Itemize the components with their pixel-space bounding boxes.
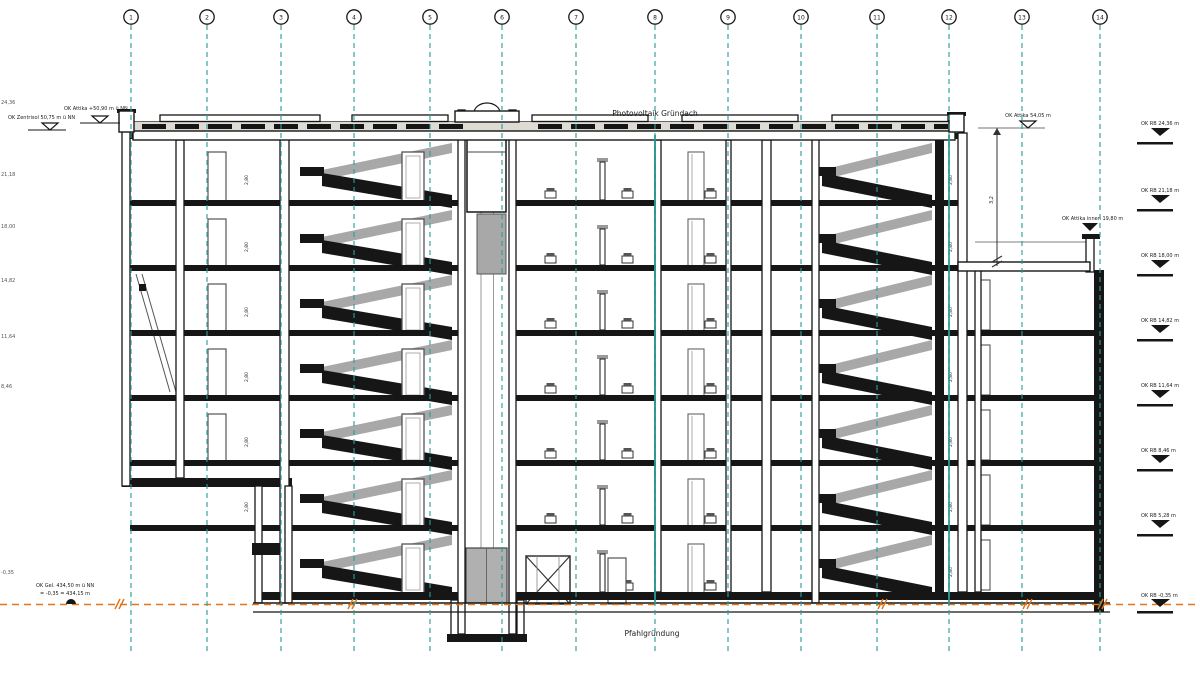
- story-height-dim: 2,80: [244, 372, 250, 382]
- pv-panel: [637, 124, 661, 129]
- wall: [176, 140, 184, 478]
- pv-panel: [307, 124, 331, 129]
- floor-slab: [516, 395, 1095, 401]
- pv-panel: [802, 124, 826, 129]
- room-door: [208, 414, 226, 464]
- stair-flight-beyond: [322, 275, 452, 312]
- toilet-cistern: [547, 318, 555, 321]
- wall-cut: [252, 543, 280, 555]
- room-door: [208, 152, 226, 202]
- level-marker-filled: [1151, 195, 1170, 203]
- roof-upstand: [352, 115, 448, 122]
- wall-cut: [935, 133, 944, 592]
- level-label: OK RB 11,64 m: [1141, 383, 1179, 389]
- level-marker-filled: [1151, 390, 1170, 398]
- grid-axis-label: 2: [205, 15, 209, 22]
- floor-slab: [516, 330, 1095, 336]
- toilet-cistern: [707, 580, 715, 583]
- partition-cap: [597, 485, 608, 489]
- partition-wall: [600, 554, 605, 592]
- level-label: OK Attika +50,90 m ü NN: [64, 106, 128, 112]
- wall-cut: [1094, 270, 1104, 612]
- roof-upstand: [160, 115, 320, 122]
- elevator-shaft: [466, 118, 507, 603]
- dimension-label: 3,2: [989, 196, 995, 204]
- room-door: [688, 349, 704, 399]
- level-marker-filled: [1151, 599, 1170, 607]
- toilet-cistern: [707, 188, 715, 191]
- building-section-drawing: 2,802,802,802,802,802,802,802,802,802,80…: [0, 0, 1200, 675]
- level-marker-filled: [1151, 455, 1170, 463]
- toilet-fixture: [705, 516, 716, 523]
- pv-panel: [538, 124, 562, 129]
- toilet-fixture: [622, 451, 633, 458]
- toilet-cistern: [547, 253, 555, 256]
- toilet-cistern: [547, 513, 555, 516]
- stair-flight-beyond: [322, 143, 452, 180]
- floor-slab: [516, 460, 1095, 466]
- stair-door: [402, 544, 424, 594]
- partition-wall: [600, 489, 605, 525]
- level-marker-filled: [1151, 260, 1170, 268]
- stair-door: [402, 349, 424, 399]
- partition-wall: [600, 424, 605, 460]
- stair-landing: [300, 559, 324, 568]
- partition-cap: [597, 290, 608, 294]
- stair-flights: [300, 143, 932, 600]
- toilet-fixture: [705, 583, 716, 590]
- toilet-fixture: [705, 451, 716, 458]
- pv-panel: [703, 124, 727, 129]
- wall: [122, 130, 130, 486]
- toilet-cistern: [624, 188, 632, 191]
- toilet-fixture: [545, 386, 556, 393]
- pv-panel: [736, 124, 760, 129]
- toilet-cistern: [547, 448, 555, 451]
- wall-cut: [1082, 234, 1100, 239]
- ground-marker: [66, 599, 76, 604]
- level-label: OK Attika 54,05 m: [1005, 113, 1051, 119]
- wall: [517, 600, 524, 636]
- wall: [509, 110, 516, 634]
- roof-slab: [119, 111, 134, 132]
- partition-cap: [597, 225, 608, 229]
- pv-panel: [835, 124, 859, 129]
- stair-flight-beyond: [322, 535, 452, 572]
- roof-slab: [949, 114, 964, 132]
- toilet-cistern: [707, 448, 715, 451]
- room-door: [688, 414, 704, 464]
- wall: [975, 270, 981, 592]
- story-height-dim: 2,80: [244, 437, 250, 447]
- pv-panel: [241, 124, 265, 129]
- wall: [812, 133, 819, 603]
- level-marker-filled: [1151, 128, 1170, 136]
- toilet-fixture: [545, 451, 556, 458]
- stair-landing: [300, 234, 324, 243]
- partition-wall: [600, 229, 605, 265]
- pv-panel: [868, 124, 892, 129]
- level-marker-bar: [1137, 274, 1173, 277]
- room-door: [688, 284, 704, 334]
- level-marker-open: [42, 123, 58, 130]
- partition-cap: [597, 158, 608, 162]
- left-edge-label: 21,18: [1, 172, 15, 178]
- ground-slab: [516, 592, 1104, 600]
- pv-panel: [439, 124, 463, 129]
- floor-slab: [130, 525, 458, 531]
- partition-cap: [597, 550, 608, 554]
- story-height-dim: 2,80: [244, 502, 250, 512]
- toilet-cistern: [624, 253, 632, 256]
- toilet-cistern: [707, 318, 715, 321]
- level-label: OK RB -0,35 m: [1141, 593, 1178, 599]
- grid-axis-label: 12: [945, 15, 953, 22]
- pv-panel: [571, 124, 595, 129]
- pv-panel: [340, 124, 364, 129]
- partition-cap: [597, 355, 608, 359]
- toilet-fixture: [545, 191, 556, 198]
- wall: [451, 600, 458, 636]
- toilet-fixture: [622, 516, 633, 523]
- room-door: [688, 219, 704, 269]
- toilet-cistern: [624, 448, 632, 451]
- ramp-block: [139, 284, 146, 291]
- grid-axis-label: 11: [873, 15, 881, 22]
- grid-axis-label: 3: [279, 15, 283, 22]
- stair-flight-beyond: [322, 405, 452, 442]
- level-label: OK Gel. 434,50 m ü NN: [36, 583, 94, 589]
- grid-axis-label: 4: [352, 15, 356, 22]
- pv-panel: [604, 124, 628, 129]
- roof-slab: [958, 262, 1090, 271]
- left-edge-label: 14,82: [1, 278, 15, 284]
- level-label: OK RB 18,00 m: [1141, 253, 1179, 259]
- wall: [958, 133, 967, 592]
- partition-wall: [600, 294, 605, 330]
- room-door: [688, 152, 704, 202]
- pv-panel: [208, 124, 232, 129]
- level-marker-bar: [1137, 339, 1173, 342]
- story-height-dim: 2,80: [244, 307, 250, 317]
- partition-cap: [597, 420, 608, 424]
- stair-flight-beyond: [322, 470, 452, 507]
- floor-slabs: [122, 133, 1104, 600]
- level-marker-filled: [1151, 325, 1170, 333]
- level-marker-filled: [1082, 223, 1098, 231]
- room-door: [208, 219, 226, 269]
- stair-flight-beyond: [322, 210, 452, 247]
- toilet-fixture: [622, 386, 633, 393]
- dimension-arrow: [993, 128, 1001, 135]
- grid-axis-label: 8: [653, 15, 657, 22]
- left-edge-label: 24,36: [1, 100, 15, 106]
- toilet-fixture: [545, 516, 556, 523]
- toilet-fixture: [705, 191, 716, 198]
- level-label: = -0,35 = 434,15 m: [40, 591, 90, 597]
- grid-axis-label: 14: [1096, 15, 1104, 22]
- foundation-title: Pfahlgründung: [625, 629, 680, 638]
- left-edge-label: -0,35: [1, 570, 14, 576]
- toilet-cistern: [707, 253, 715, 256]
- story-height-dim: 2,80: [244, 242, 250, 252]
- pv-panel: [142, 124, 166, 129]
- level-label: OK RB 24,36 m: [1141, 121, 1179, 127]
- toilet-cistern: [707, 383, 715, 386]
- room-door: [688, 544, 704, 594]
- level-label: OK RB 5,28 m: [1141, 513, 1176, 519]
- grid-axis-label: 1: [129, 15, 133, 22]
- left-edge-label: 8,46: [1, 384, 12, 390]
- roof-slab: [133, 131, 955, 140]
- stair-flight-beyond: [322, 340, 452, 377]
- stair-landing: [300, 364, 324, 373]
- toilet-cistern: [624, 383, 632, 386]
- level-marker-filled: [1151, 520, 1170, 528]
- toilet-cistern: [547, 383, 555, 386]
- grid-axis-label: 7: [574, 15, 578, 22]
- pv-panel: [406, 124, 430, 129]
- story-height-dim: 2,80: [244, 175, 250, 185]
- toilet-fixture: [622, 191, 633, 198]
- drawing-canvas: 2,802,802,802,802,802,802,802,802,802,80…: [0, 0, 1200, 675]
- toilet-fixture: [545, 321, 556, 328]
- stair-landing: [300, 429, 324, 438]
- pv-panel: [373, 124, 397, 129]
- roof-upstand: [682, 115, 798, 122]
- roof-upstand: [832, 115, 948, 122]
- stair-door: [402, 219, 424, 269]
- floor-slab: [516, 525, 1095, 531]
- roof-slab: [455, 111, 519, 122]
- grid-axis-label: 5: [428, 15, 432, 22]
- pv-panel: [901, 124, 925, 129]
- level-marker-bar: [1137, 534, 1173, 537]
- toilet-cistern: [547, 188, 555, 191]
- room-door: [208, 349, 226, 399]
- rooms-and-fittings: 2,802,802,802,802,802,802,802,802,802,80…: [125, 148, 1102, 604]
- left-edge-label: 11,64: [1, 334, 15, 340]
- foundation-ground-line: [0, 599, 1200, 612]
- floor-slab: [516, 265, 958, 271]
- toilet-fixture: [622, 256, 633, 263]
- stair-landing: [300, 167, 324, 176]
- floor-slab: [516, 200, 958, 206]
- toilet-cistern: [624, 318, 632, 321]
- stair-door: [402, 284, 424, 334]
- toilet-cistern: [624, 513, 632, 516]
- stair-landing: [300, 299, 324, 308]
- toilet-fixture: [705, 321, 716, 328]
- level-label: OK RB 21,18 m: [1141, 188, 1179, 194]
- pv-panel: [274, 124, 298, 129]
- wall: [285, 486, 292, 603]
- level-marker-open: [92, 116, 108, 123]
- left-edge-label: 18,00: [1, 224, 15, 230]
- level-label: OK RB 14,82 m: [1141, 318, 1179, 324]
- toilet-cistern: [707, 513, 715, 516]
- wall: [762, 140, 771, 592]
- grid-axis-label: 10: [797, 15, 805, 22]
- level-label: OK RB 8,46 m: [1141, 448, 1176, 454]
- level-marker-bar: [1137, 469, 1173, 472]
- grid-axis-label: 13: [1018, 15, 1026, 22]
- toilet-fixture: [622, 321, 633, 328]
- level-label: OK Zentrisol 50,75 m ü NN: [8, 115, 75, 121]
- toilet-fixture: [705, 386, 716, 393]
- pv-panel: [670, 124, 694, 129]
- level-marker-bar: [1137, 142, 1173, 145]
- level-marker-bar: [1137, 404, 1173, 407]
- toilet-fixture: [705, 256, 716, 263]
- stair-door: [402, 152, 424, 202]
- grid-axis-label: 6: [500, 15, 504, 22]
- stair-door: [402, 414, 424, 464]
- wall: [458, 110, 465, 634]
- level-label: OK Attika innen 19,80 m: [1062, 216, 1123, 222]
- room-door: [208, 284, 226, 334]
- toilet-fixture: [545, 256, 556, 263]
- wall-cut: [447, 634, 527, 642]
- pv-panel: [175, 124, 199, 129]
- stair-landing: [300, 494, 324, 503]
- stair-door: [402, 479, 424, 529]
- grid-axis-label: 9: [726, 15, 730, 22]
- partition-wall: [600, 162, 605, 200]
- partition-wall: [600, 359, 605, 395]
- pv-panel: [769, 124, 793, 129]
- room-door: [688, 479, 704, 529]
- level-marker-bar: [1137, 209, 1173, 212]
- level-marker-bar: [1137, 611, 1173, 614]
